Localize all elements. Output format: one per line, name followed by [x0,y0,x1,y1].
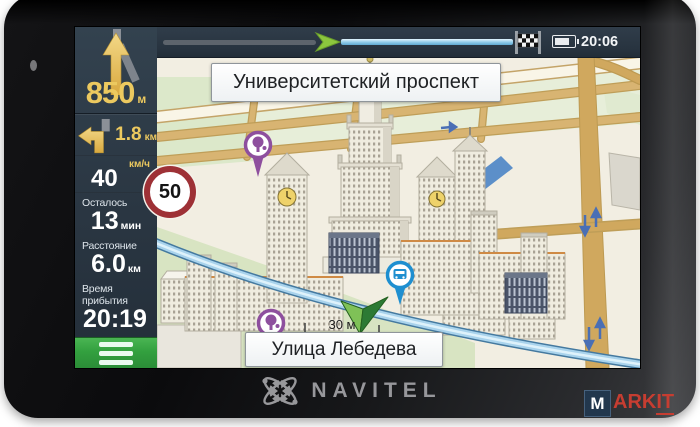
navitel-logo-text: NAVITEL [311,379,441,403]
arrival-time-label: Время прибытия [75,283,157,307]
map-view[interactable]: 30 м Университетский проспект Улица Лебе… [157,27,640,368]
speed-value: 40 [91,165,118,193]
markit-watermark: M ARKIT [584,390,674,417]
menu-button[interactable] [75,337,157,368]
trip-info[interactable]: Осталось 13мин Расстояние 6.0км Время пр… [75,193,157,337]
bezel-right-edge [644,0,696,418]
hamburger-icon [99,342,133,347]
arrival-time-value: 20:19 [75,307,157,337]
map-building-right [609,153,640,210]
maneuver-primary-distance: 850м [75,75,157,111]
maneuver-next-distance: 1.8 [115,124,141,146]
speed-limit-sign[interactable]: 50 [144,166,196,218]
finish-flag-icon [513,31,543,54]
maneuver-primary[interactable]: 850м [75,27,157,113]
speed-unit: км/ч [129,159,150,170]
bezel-sensor-dot [30,60,37,71]
product-photo: NAVITEL [0,0,700,427]
progress-track [163,40,316,45]
maneuver-next[interactable]: 1.8 км [75,115,157,155]
street-banner-current: Улица Лебедева [245,332,443,367]
street-name-bottom: Улица Лебедева [272,339,417,361]
markit-text: ARK [613,391,656,413]
distance-value: 6.0км [75,252,157,282]
map-scale-label: 30 м [328,317,355,332]
remaining-time-value: 13мин [75,209,157,239]
gps-screen: 30 м Университетский проспект Улица Лебе… [75,27,640,368]
maneuver-next-unit: км [145,132,157,143]
route-progress-bar[interactable]: 20:06 [157,27,640,58]
route-progress-arrow-icon [314,31,342,53]
markit-m-logo: M [584,390,611,417]
bezel-top-edge [4,0,696,24]
street-name-top: Университетский проспект [233,71,479,94]
battery-icon [552,35,576,48]
markit-text-underlined: IT [656,391,674,415]
speed-limit-value: 50 [159,181,181,204]
arrow-turn-left-icon [75,115,114,155]
status-clock: 20:06 [581,27,618,57]
street-banner-next: Университетский проспект [211,63,501,102]
progress-remaining [341,39,513,45]
navitel-globe-icon [258,369,302,413]
